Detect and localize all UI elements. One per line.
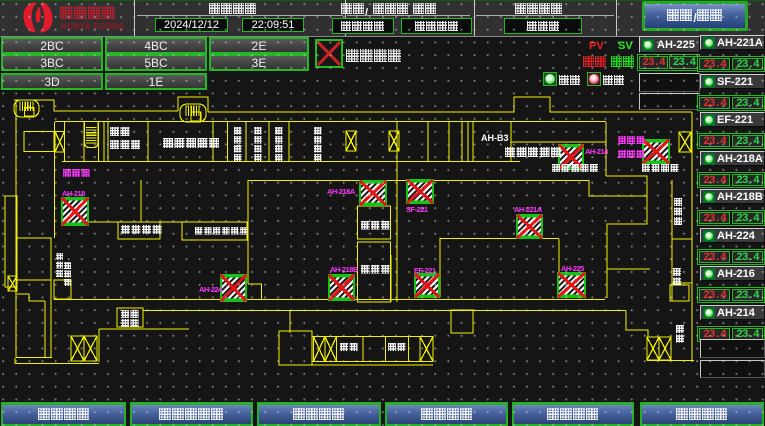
svg-text:AH-221A: AH-221A: [514, 205, 543, 214]
svg-text:AH-218: AH-218: [62, 189, 85, 198]
svg-text:AH-225: AH-225: [561, 264, 584, 273]
svg-text:EF-221: EF-221: [414, 266, 436, 275]
svg-text:AH-B3: AH-B3: [481, 133, 509, 143]
svg-text:SF-221: SF-221: [406, 205, 428, 214]
svg-text:AH-214: AH-214: [585, 147, 609, 156]
svg-text:AH-218B: AH-218B: [330, 265, 359, 274]
svg-text:AH-218A: AH-218A: [327, 187, 356, 196]
svg-text:AH-224: AH-224: [199, 285, 223, 294]
